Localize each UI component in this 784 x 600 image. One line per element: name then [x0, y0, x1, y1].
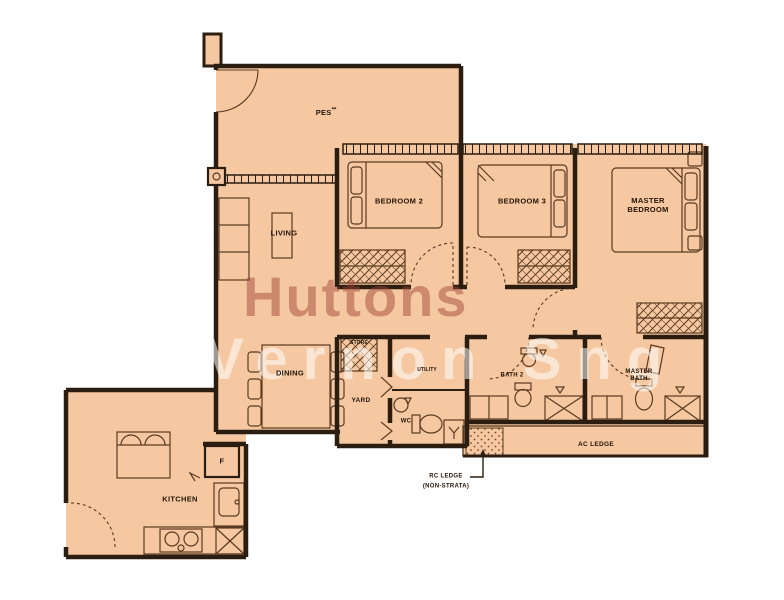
chair [248, 406, 261, 426]
wc-label: WC [401, 418, 412, 425]
dining-label: DINING [276, 369, 304, 378]
yard-label: YARD [351, 397, 370, 405]
rc-ledge-label-line2: (NON-STRATA) [423, 483, 469, 490]
store-label: STORE [350, 340, 368, 346]
fridge-label: F [220, 457, 225, 466]
living-window [218, 175, 337, 183]
pes-marker: ** [332, 107, 337, 113]
living-label: LIVING [271, 229, 298, 238]
bedroom3-window [463, 144, 572, 154]
pes-label-text: PES [316, 108, 332, 117]
column-box [208, 168, 225, 185]
wall-stub [204, 34, 221, 66]
bedroom3-label: BEDROOM 3 [498, 197, 546, 206]
floorplan-page: Huttons Vernon Sng PES** LIVING DINING B… [0, 0, 784, 600]
rc-ledge-label-line1: RC LEDGE [429, 473, 462, 480]
kitchen-label: KITCHEN [162, 495, 197, 504]
rc-ledge-region [466, 428, 503, 456]
master-bath-label: MASTER BATH [618, 369, 660, 383]
master-bedroom-label: MASTER BEDROOM [618, 196, 678, 214]
bath2-label: BATH 2 [500, 372, 523, 379]
bedroom2-window [343, 144, 458, 154]
watermark-agent: Vernon Sng [205, 326, 677, 393]
pes-label: PES** [316, 107, 337, 117]
watermark-brand: Huttons [243, 264, 469, 329]
ac-ledge-label: AC LEDGE [578, 441, 614, 449]
master-window [578, 144, 702, 154]
utility-label: UTILITY [417, 367, 437, 373]
bedroom2-label: BEDROOM 2 [375, 197, 423, 206]
